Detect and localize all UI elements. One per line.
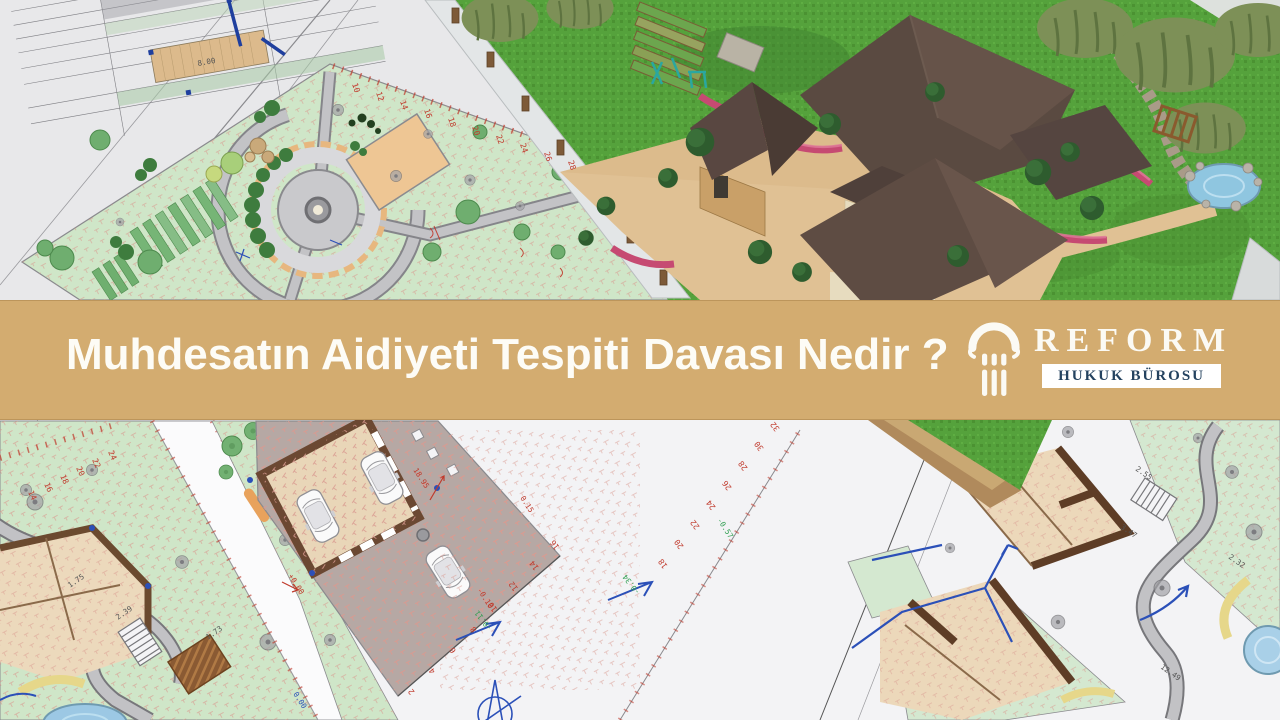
column-icon bbox=[966, 312, 1022, 400]
logo-name: REFORM bbox=[1034, 324, 1233, 358]
logo-subtitle: HUKUK BÜROSU bbox=[1042, 364, 1221, 388]
logo: REFORM HUKUK BÜROSU bbox=[966, 308, 1233, 404]
logo-subtitle-text: HUKUK BÜROSU bbox=[1058, 368, 1205, 384]
thumbnail: 8.00 18.95 +0.00 -0.10 0.15 0.00 -0.57 2… bbox=[0, 0, 1280, 720]
page-title: Muhdesatın Aidiyeti Tespiti Davası Nedir… bbox=[66, 330, 949, 380]
